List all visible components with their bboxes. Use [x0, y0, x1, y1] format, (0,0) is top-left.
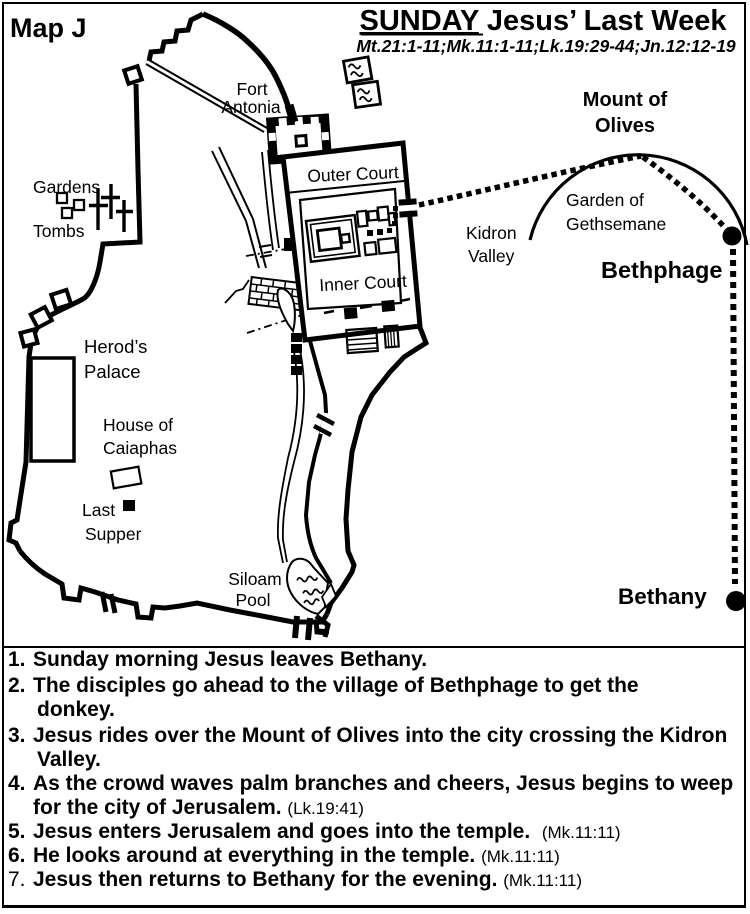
svg-text:Kidron: Kidron [466, 223, 517, 243]
svg-text:Mount of: Mount of [583, 89, 668, 111]
svg-text:Fort: Fort [236, 79, 267, 99]
svg-text:Garden of: Garden of [566, 190, 644, 210]
svg-text:Valley: Valley [468, 246, 515, 266]
svg-text:Gardens: Gardens [33, 177, 100, 197]
svg-text:Antonia: Antonia [221, 97, 281, 117]
svg-text:Siloam: Siloam [228, 569, 282, 589]
svg-text:Olives: Olives [595, 115, 655, 137]
svg-text:Caiaphas: Caiaphas [103, 438, 177, 458]
svg-text:Herod’s: Herod’s [84, 336, 147, 357]
svg-text:Bethany: Bethany [618, 584, 707, 609]
svg-text:Pool: Pool [235, 590, 270, 610]
svg-text:Bethphage: Bethphage [601, 257, 722, 283]
svg-text:Palace: Palace [84, 361, 141, 382]
svg-text:Mt.21:1-11;Mk.11:1-11;Lk.19:29: Mt.21:1-11;Mk.11:1-11;Lk.19:29-44;Jn.12:… [356, 36, 736, 56]
svg-text:Supper: Supper [85, 524, 142, 544]
svg-text:Gethsemane: Gethsemane [566, 214, 666, 234]
svg-text:Last: Last [82, 500, 115, 520]
svg-text:Map J: Map J [10, 13, 87, 43]
svg-text:SUNDAY Jesus’ Last Week: SUNDAY Jesus’ Last Week [360, 5, 728, 37]
svg-text:Outer Court: Outer Court [307, 162, 399, 186]
svg-text:House of: House of [103, 415, 173, 435]
svg-text:Tombs: Tombs [33, 221, 85, 241]
